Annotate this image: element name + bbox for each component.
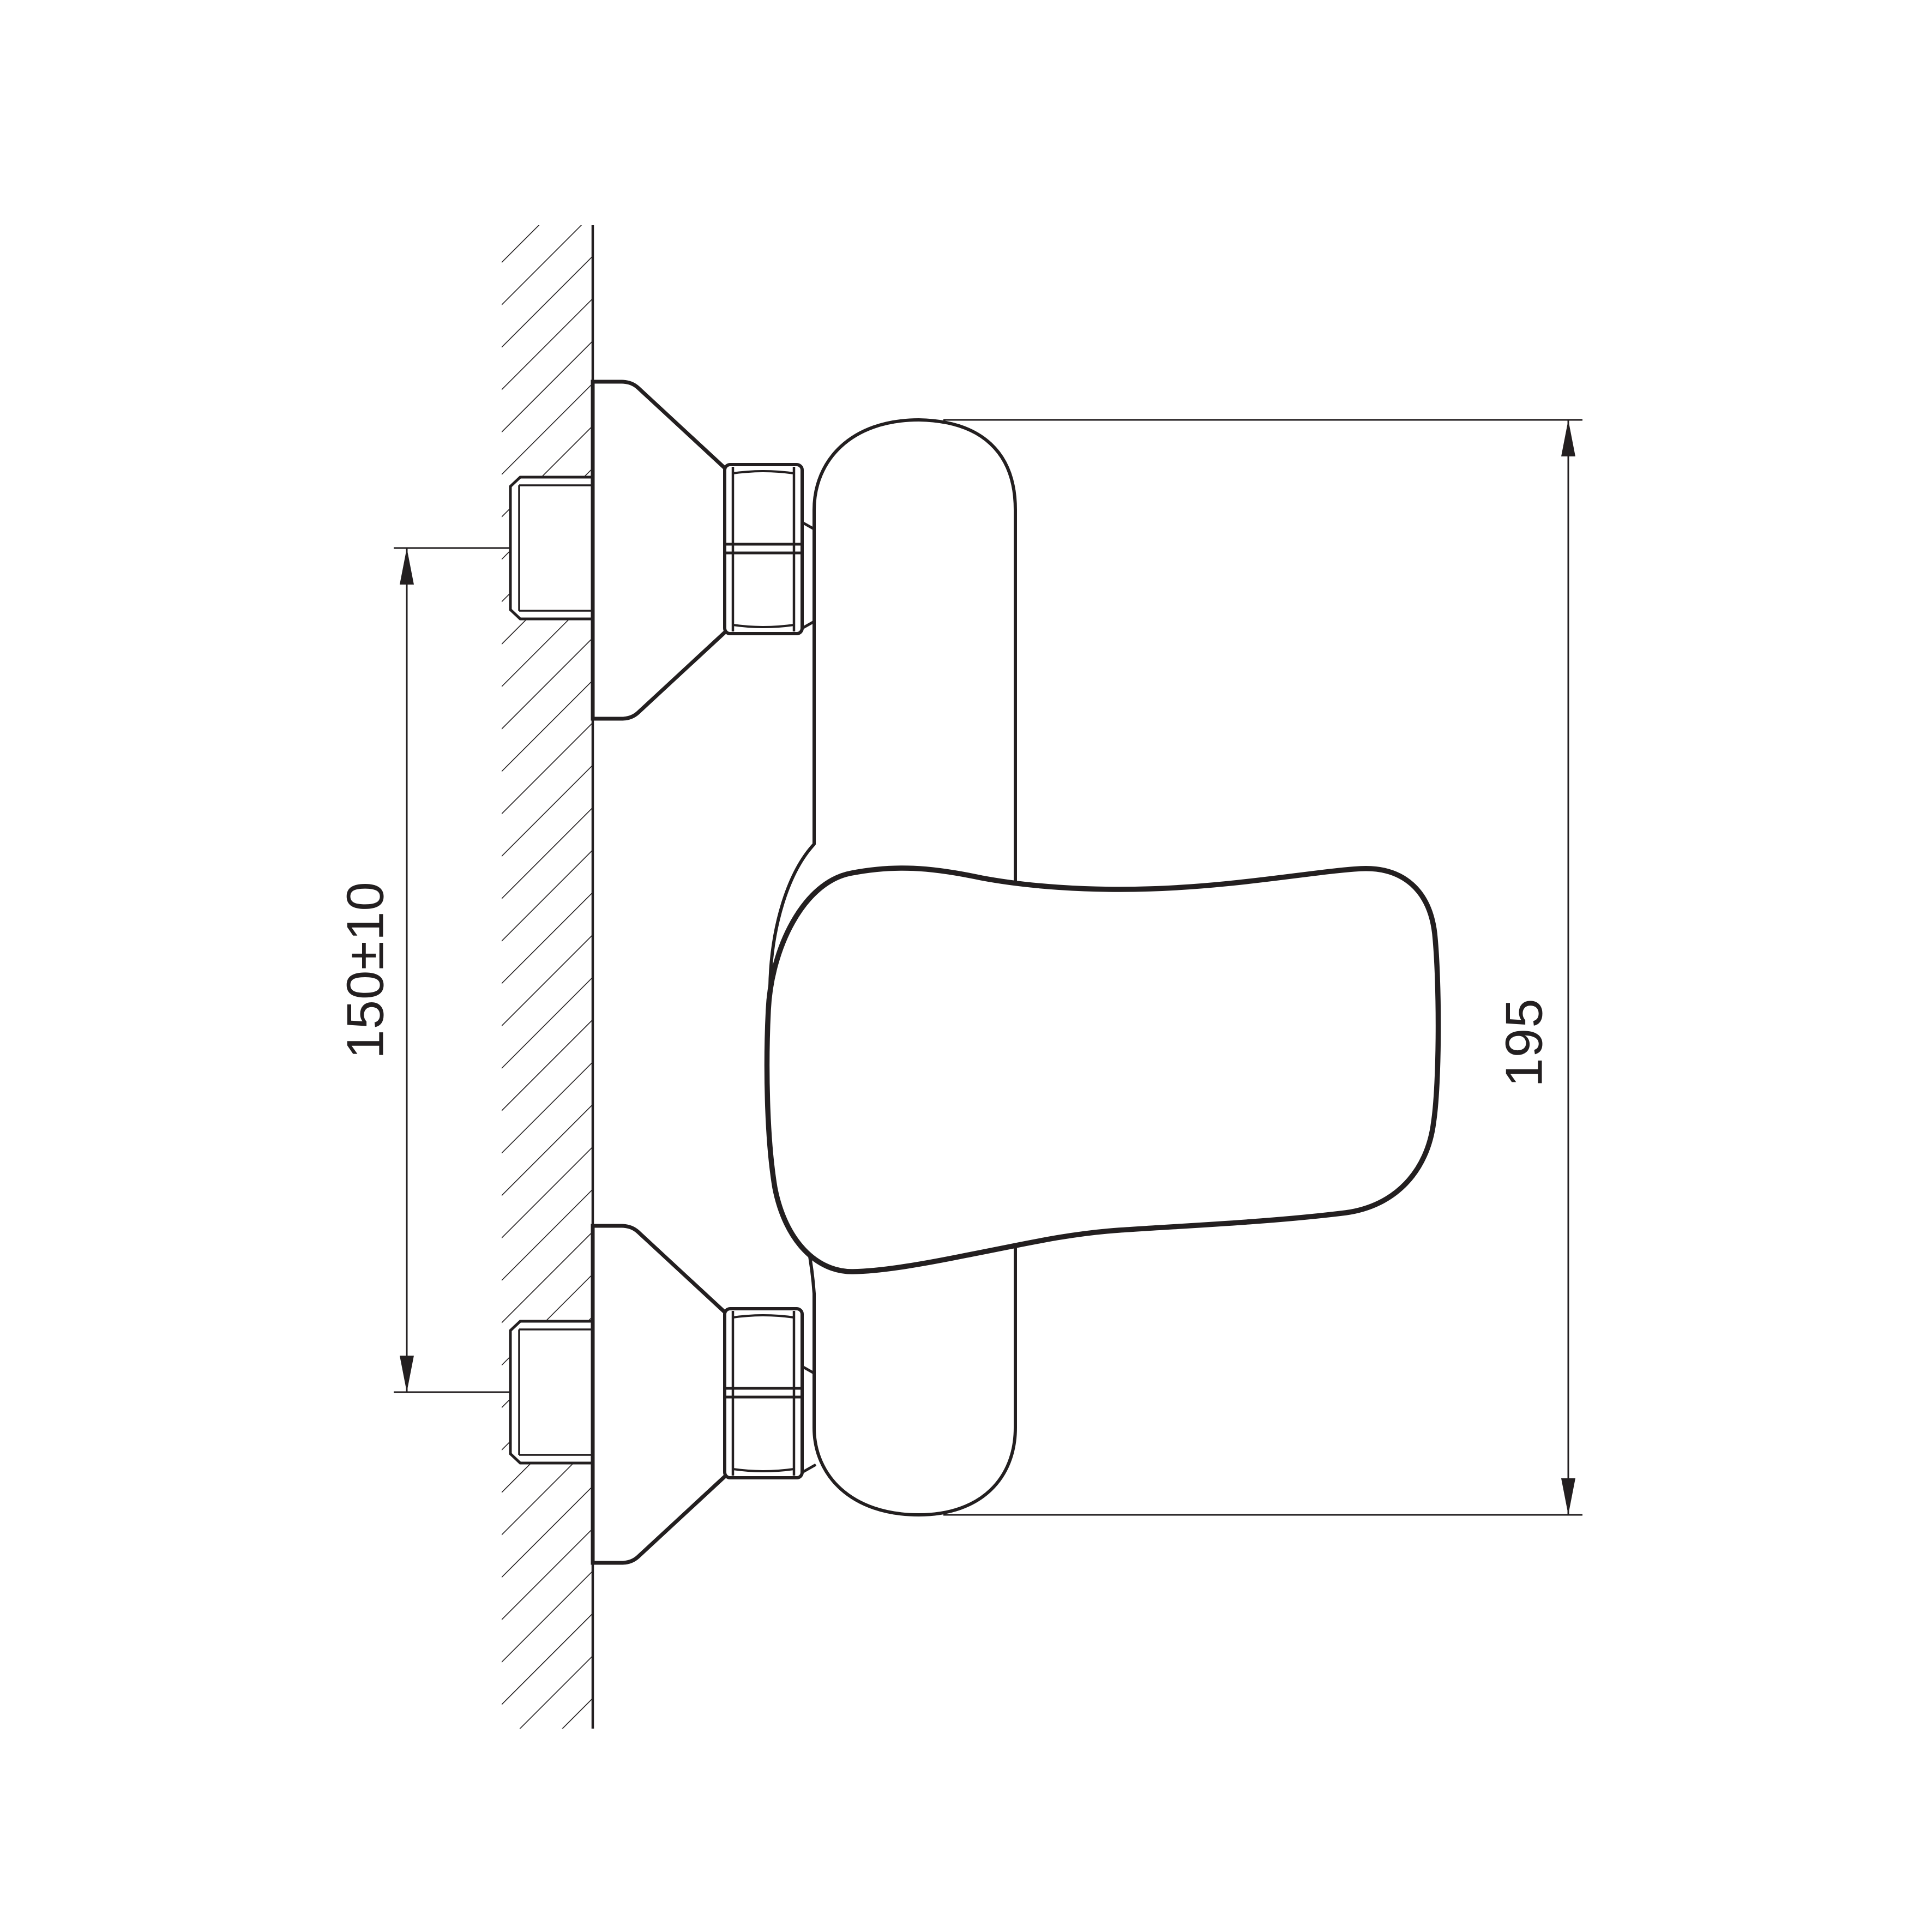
- top-wall-pipe: [510, 477, 593, 619]
- handle-lever-outline: [767, 868, 1439, 1272]
- dimension-label-overall-height: 195: [1495, 998, 1553, 1087]
- technical-drawing-canvas: 150±10 195: [0, 0, 1932, 1932]
- wall-hatching: [502, 225, 593, 1729]
- top-hex-nut: [725, 465, 802, 634]
- bottom-hex-nut: [725, 1309, 802, 1478]
- dim-arrow-up: [400, 548, 414, 585]
- bottom-wall-pipe: [510, 1321, 593, 1463]
- dim-arrow-up: [1561, 420, 1575, 456]
- dim-arrow-down: [1561, 1478, 1575, 1515]
- top-escutcheon: [593, 382, 726, 719]
- dimension-label-pipe-spacing: 150±10: [336, 881, 394, 1059]
- wall-section: [502, 225, 593, 1729]
- dimension-pipe-spacing: 150±10: [336, 548, 509, 1392]
- drawing-page: 150±10 195: [0, 0, 1932, 1932]
- bottom-escutcheon: [593, 1226, 726, 1563]
- dim-arrow-down: [400, 1356, 414, 1392]
